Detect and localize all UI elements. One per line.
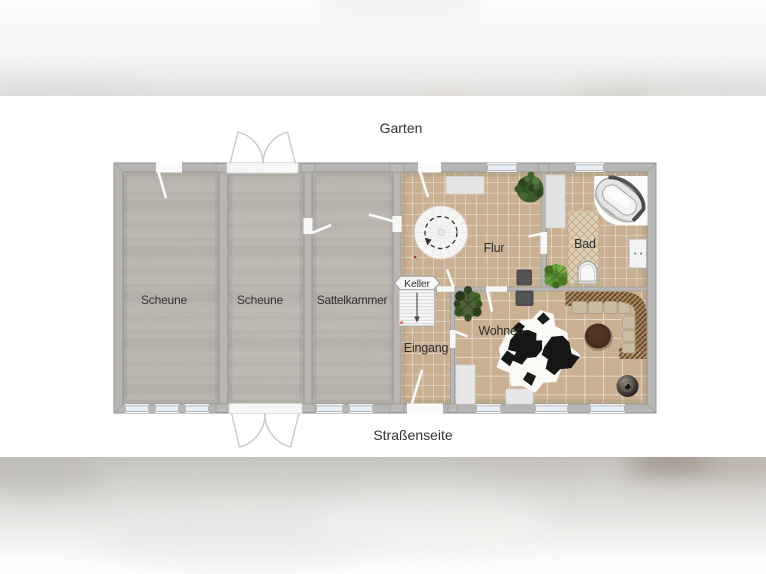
svg-text:Wohnen: Wohnen (478, 324, 523, 338)
svg-text:Bad: Bad (574, 237, 596, 251)
svg-text:Garten: Garten (380, 120, 423, 136)
svg-text:Eingang: Eingang (404, 341, 449, 355)
svg-text:Straßenseite: Straßenseite (373, 427, 453, 443)
svg-text:Keller: Keller (404, 278, 430, 290)
svg-text:Scheune: Scheune (141, 293, 187, 307)
svg-text:Flur: Flur (484, 241, 505, 255)
svg-text:Sattelkammer: Sattelkammer (317, 293, 388, 307)
svg-text:Scheune: Scheune (237, 293, 283, 307)
